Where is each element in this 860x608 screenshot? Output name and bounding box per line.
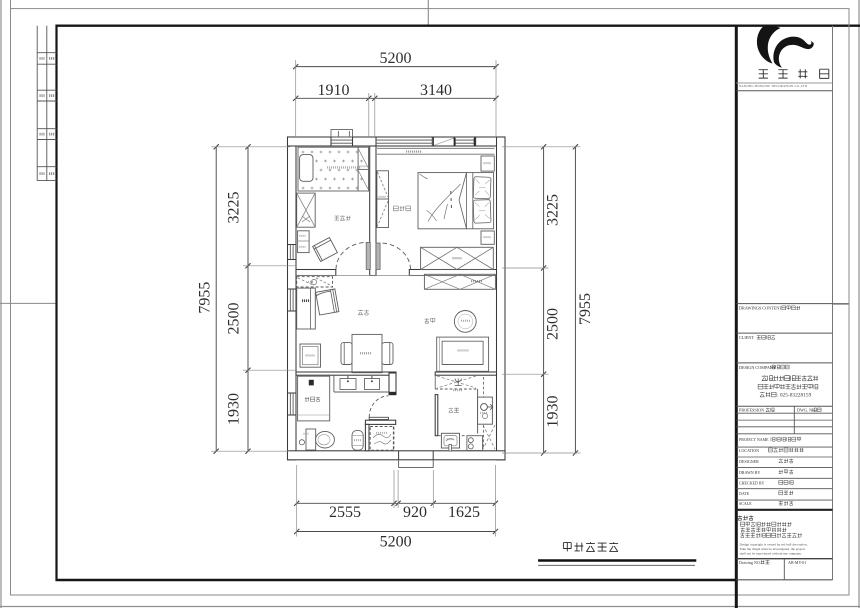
svg-text:7955: 7955 [197,282,214,314]
svg-text:2555: 2555 [329,504,361,521]
svg-text:DRAWINGS CONTENT: DRAWINGS CONTENT [739,306,782,311]
svg-text:1930: 1930 [226,393,243,425]
svg-text:5200: 5200 [380,50,412,67]
svg-text:3225: 3225 [226,192,243,224]
svg-text:3225: 3225 [545,194,562,226]
svg-text:shall not be reproduced withou: shall not be reproduced without my compa… [740,552,802,556]
svg-text:Design copyright is owned by r: Design copyright is owned by red bull de… [740,542,808,546]
svg-text:PROFESSION: PROFESSION [739,408,764,413]
svg-text:DESIGNER: DESIGNER [739,459,759,464]
svg-text:SCALE: SCALE [739,501,752,506]
svg-text:1625: 1625 [448,504,480,521]
svg-text:1910: 1910 [318,82,350,99]
svg-text:3140: 3140 [420,82,452,99]
svg-text:LOCATION: LOCATION [739,448,759,453]
svg-text:AB-MY-01: AB-MY-01 [788,560,806,565]
svg-text:CLIENT: CLIENT [739,335,754,340]
svg-text:PROJECT NAME: PROJECT NAME [739,437,769,442]
svg-text:: 025-83228159: : 025-83228159 [777,392,812,398]
svg-text:DATE: DATE [739,491,750,496]
svg-text:Drawing NO.: Drawing NO. [739,560,761,565]
svg-text:2500: 2500 [545,308,562,340]
svg-text:CHECKED BY: CHECKED BY [739,480,765,485]
svg-text:DRAWN BY: DRAWN BY [739,470,760,475]
svg-text:920: 920 [403,504,427,521]
svg-text:1930: 1930 [545,396,562,428]
svg-text:DESIGN COMPANY: DESIGN COMPANY [739,365,776,370]
svg-text:2500: 2500 [226,303,243,335]
svg-text:7955: 7955 [577,293,594,325]
svg-text:DWG. No: DWG. No [797,408,814,413]
svg-text:5200: 5200 [380,534,412,551]
